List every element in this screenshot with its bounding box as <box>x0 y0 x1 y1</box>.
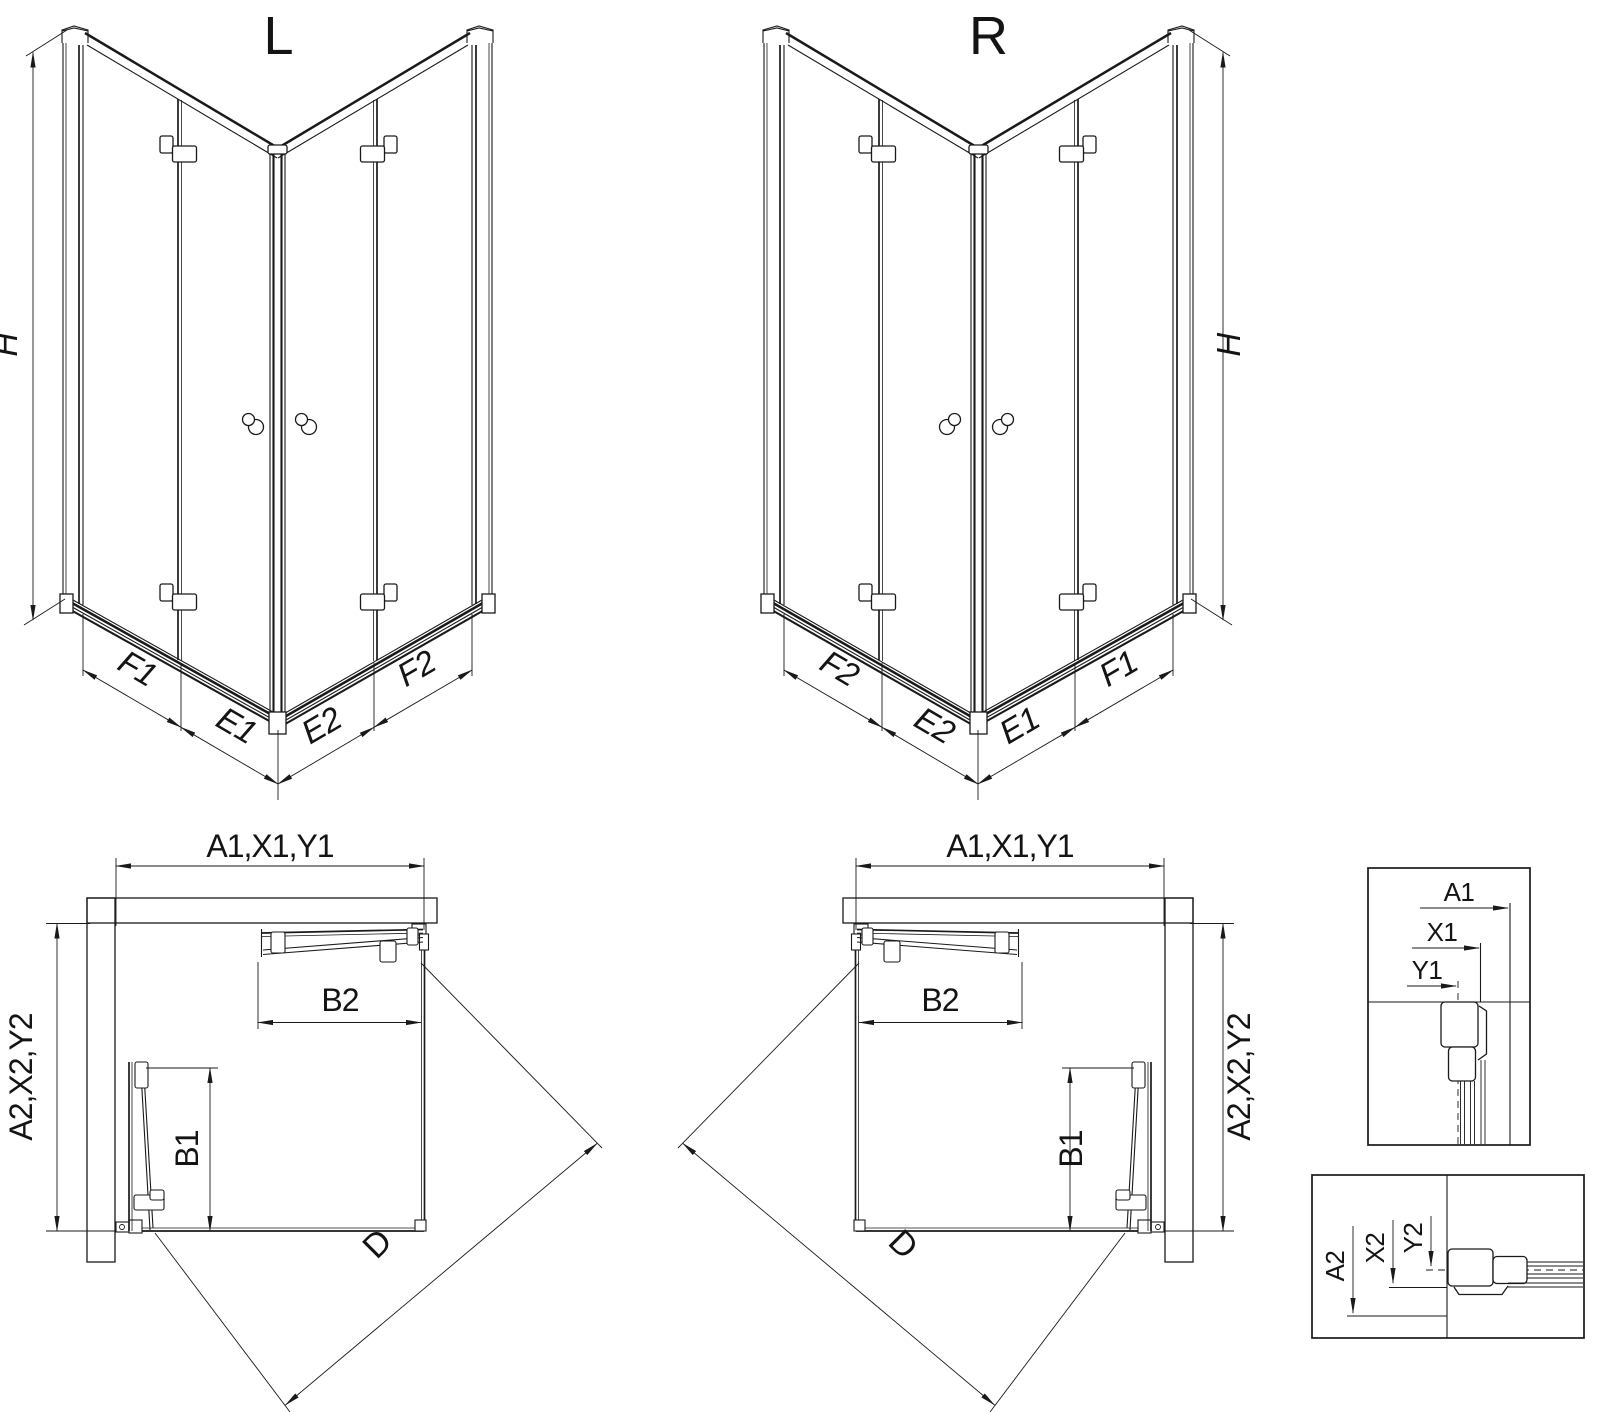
dim-label-d-right-plan: D <box>881 1222 925 1266</box>
dim-label-width-right-plan: A1,X1,Y1 <box>946 828 1073 864</box>
detail-label-y2: Y2 <box>1398 1223 1428 1254</box>
detail-label-x2: X2 <box>1360 1233 1390 1264</box>
view-label-right: R <box>969 6 1007 66</box>
dim-label-width-left-plan: A1,X1,Y1 <box>206 828 333 864</box>
dim-label-b2-left-plan: B2 <box>321 982 358 1018</box>
profile-section-vertical <box>1441 1002 1487 1144</box>
detail-view-top: A1 X1 Y1 <box>1368 868 1530 1145</box>
detail-label-x1: X1 <box>1427 917 1458 947</box>
detail-label-a2: A2 <box>1320 1251 1350 1282</box>
detail-label-a1: A1 <box>1444 877 1475 907</box>
iso-view-right: R H F2 E2 E1 F1 <box>761 6 1247 800</box>
iso-view-left: L H F1 E1 E2 F2 <box>0 6 495 800</box>
dim-label-height-left: H <box>0 333 24 357</box>
dim-label-depth-left-plan: A2,X2,Y2 <box>3 1013 39 1140</box>
dim-label-height-right: H <box>1210 333 1247 357</box>
plan-view-right: A1,X1,Y1 A2,X2,Y2 B2 B1 D <box>678 828 1257 1412</box>
dim-label-b1-left-plan: B1 <box>169 1130 205 1167</box>
dim-label-b2-right-plan: B2 <box>921 982 958 1018</box>
view-label-left: L <box>263 6 292 66</box>
dim-label-b1-right-plan: B1 <box>1053 1130 1089 1167</box>
profile-section-horizontal <box>1448 1249 1583 1295</box>
dim-label-depth-right-plan: A2,X2,Y2 <box>1221 1013 1257 1140</box>
dim-label-d-left-plan: D <box>355 1222 399 1266</box>
technical-drawing-canvas: L H F1 E1 E2 F2 R H F2 E2 E1 F1 A1,X1,Y1… <box>0 0 1600 1413</box>
plan-view-left: A1,X1,Y1 A2,X2,Y2 B2 B1 D <box>3 828 602 1412</box>
detail-label-y1: Y1 <box>1412 955 1443 985</box>
detail-view-bottom: A2 X2 Y2 <box>1312 1175 1584 1338</box>
drawing-svg: L H F1 E1 E2 F2 R H F2 E2 E1 F1 A1,X1,Y1… <box>0 0 1600 1413</box>
